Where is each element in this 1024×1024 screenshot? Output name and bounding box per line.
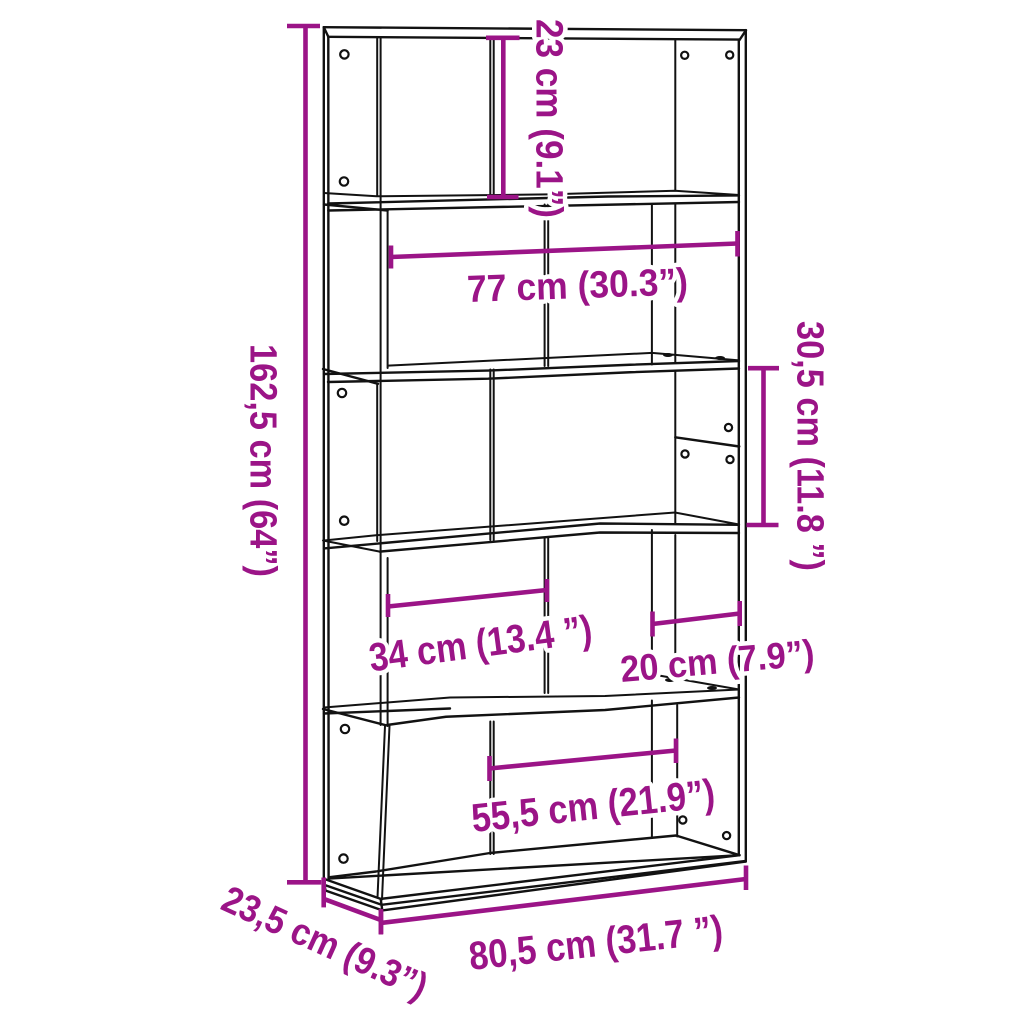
svg-text:77 cm (30.3”): 77 cm (30.3”) <box>466 261 688 311</box>
svg-text:162,5 cm (64”): 162,5 cm (64”) <box>242 344 284 577</box>
svg-text:23 cm (9.1”): 23 cm (9.1”) <box>528 19 570 218</box>
svg-text:30,5 cm (11.8 ”): 30,5 cm (11.8 ”) <box>789 321 831 571</box>
